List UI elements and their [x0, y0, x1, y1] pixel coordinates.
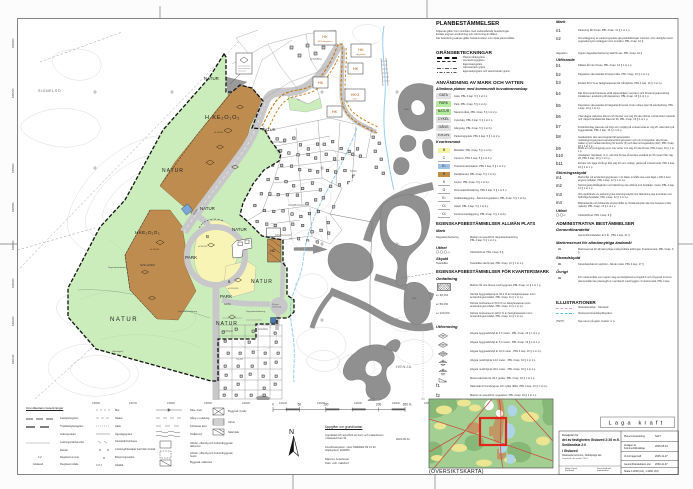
- svg-text:SANDKÄLLEN: SANDKÄLLEN: [275, 234, 291, 237]
- svg-text:Laga kraft: Laga kraft: [609, 421, 666, 427]
- svg-text:PARK: PARK: [220, 294, 233, 299]
- svg-text:NATUR: NATUR: [204, 76, 219, 81]
- svg-text:e1 30,0%: e1 30,0%: [214, 132, 223, 134]
- svg-text:HKG: HKG: [351, 92, 360, 97]
- svg-text:HK: HK: [358, 47, 364, 52]
- svg-text:NATUR: NATUR: [232, 227, 247, 232]
- svg-text:SANDBACKEN: SANDBACKEN: [288, 204, 305, 207]
- svg-text:GATA: GATA: [224, 302, 231, 306]
- svg-text:HENJA: HENJA: [396, 364, 412, 369]
- svg-text:445600: 445600: [92, 402, 101, 405]
- svg-text:300 m: 300 m: [403, 403, 412, 407]
- svg-text:6355300: 6355300: [12, 278, 15, 288]
- svg-text:6355500: 6355500: [12, 202, 15, 212]
- svg-text:446400: 446400: [392, 402, 401, 405]
- svg-text:ÅSEN: ÅSEN: [350, 170, 357, 173]
- svg-text:HC: HC: [270, 249, 276, 253]
- svg-text:B: B: [206, 234, 209, 239]
- svg-text:445800: 445800: [167, 402, 176, 405]
- svg-text:PER: PER: [412, 298, 417, 300]
- svg-text:HK: HK: [332, 109, 338, 114]
- svg-text:N: N: [289, 429, 294, 436]
- svg-text:HK: HK: [322, 34, 328, 39]
- svg-text:EKEDEN: EKEDEN: [258, 328, 268, 331]
- svg-text:rörledning): rörledning): [272, 306, 281, 309]
- svg-text:FRIDHEM: FRIDHEM: [222, 330, 233, 333]
- svg-text:NATUR: NATUR: [162, 168, 184, 174]
- svg-text:0: 0: [272, 403, 274, 407]
- svg-text:Dagvattenhantering: Dagvattenhantering: [108, 266, 128, 269]
- svg-text:HKE₂O₁O₂: HKE₂O₁O₂: [135, 230, 160, 235]
- svg-text:LJUNGHEDEN: LJUNGHEDEN: [270, 141, 286, 144]
- svg-text:NATUR: NATUR: [110, 317, 138, 323]
- svg-text:HK: HK: [353, 66, 359, 71]
- svg-text:NATUR: NATUR: [216, 321, 238, 327]
- svg-text:6355100: 6355100: [12, 354, 15, 364]
- svg-text:HK: HK: [318, 80, 324, 85]
- svg-text:445700: 445700: [129, 402, 138, 405]
- svg-text:446300: 446300: [354, 402, 363, 405]
- svg-text:446000: 446000: [242, 402, 251, 405]
- svg-text:50: 50: [298, 403, 302, 407]
- svg-text:NATUR: NATUR: [262, 127, 276, 132]
- svg-text:GISLAVED: GISLAVED: [140, 263, 156, 267]
- svg-text:6355400: 6355400: [12, 240, 15, 250]
- svg-text:e3 120,0%: e3 120,0%: [228, 288, 239, 290]
- svg-text:6355600: 6355600: [12, 163, 15, 173]
- svg-text:200: 200: [376, 403, 382, 407]
- svg-text:e2 50,0%: e2 50,0%: [198, 246, 207, 248]
- svg-text:6355200: 6355200: [12, 316, 15, 326]
- svg-text:e1 30,0%: e1 30,0%: [150, 249, 159, 251]
- svg-text:Dagvattenhantering: Dagvattenhantering: [246, 310, 266, 313]
- svg-text:ÄNGSBOA: ÄNGSBOA: [310, 58, 322, 61]
- svg-text:147,3: 147,3: [96, 464, 103, 467]
- svg-text:NATUR: NATUR: [200, 206, 215, 211]
- svg-text:dagvatten: dagvatten: [356, 53, 366, 56]
- svg-text:62% dagvatten: 62% dagvatten: [318, 40, 333, 43]
- svg-text:PER: PER: [404, 109, 409, 111]
- svg-text:446100: 446100: [279, 402, 288, 405]
- svg-text:(Skredsyta): (Skredsyta): [112, 350, 123, 353]
- svg-text:6355700: 6355700: [12, 88, 15, 98]
- svg-text:e2%: e2%: [353, 99, 357, 101]
- svg-text:PARK: PARK: [185, 255, 198, 260]
- svg-text:445900: 445900: [204, 402, 213, 405]
- svg-text:VILAN: VILAN: [236, 358, 243, 361]
- svg-text:100: 100: [323, 403, 329, 407]
- svg-text:6355800: 6355800: [12, 38, 15, 48]
- svg-text:SIGNELSÖ: SIGNELSÖ: [38, 89, 61, 93]
- svg-text:Dagvattenhantering: Dagvattenhantering: [178, 310, 198, 313]
- svg-text:NATUR: NATUR: [251, 279, 273, 285]
- svg-text:H KE₂O₁O₂: H KE₂O₁O₂: [205, 115, 240, 121]
